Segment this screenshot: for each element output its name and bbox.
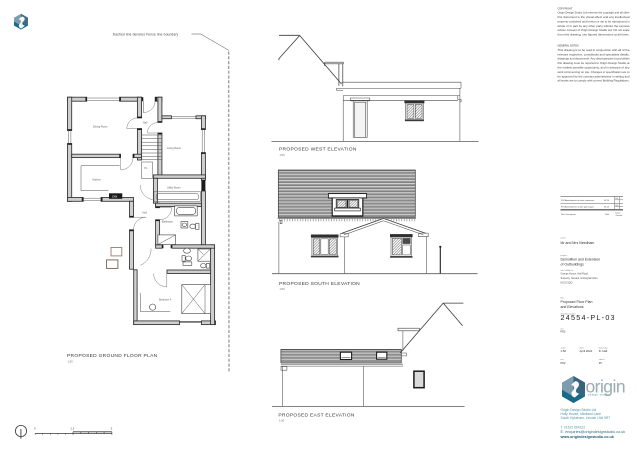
svg-text:PROPOSED SOUTH ELEVATION: PROPOSED SOUTH ELEVATION: [279, 281, 360, 287]
svg-text:written consent of Origin Desi: written consent of Origin Design Studio …: [558, 29, 631, 32]
svg-text:2.5: 2.5: [71, 426, 75, 430]
svg-text:1:50: 1:50: [280, 153, 286, 157]
svg-text:work commencing on site. Chang: work commencing on site. Changes or spec…: [558, 71, 631, 74]
svg-text:1:50: 1:50: [561, 349, 567, 353]
svg-text:PROPOSED WEST ELEVATION: PROPOSED WEST ELEVATION: [279, 147, 357, 153]
svg-text:P02 Amendments to client com: P02 Amendments to client comments: [561, 199, 594, 202]
svg-text:from this drawing, use figured: from this drawing, use figured dimension…: [558, 34, 630, 37]
svg-text:Proposed Floor Plan: Proposed Floor Plan: [561, 300, 593, 304]
svg-text:04.24: 04.24: [604, 200, 610, 202]
svg-text:title:: title:: [561, 297, 565, 300]
svg-text:Bathroom: Bathroom: [162, 220, 173, 223]
svg-text:Utility Room: Utility Room: [167, 187, 180, 190]
svg-text:Rev. Description: Rev. Description: [561, 213, 576, 216]
svg-text:24554-PL-03: 24554-PL-03: [561, 313, 616, 322]
svg-text:client:: client:: [561, 237, 567, 240]
svg-text:Demolition and Extension: Demolition and Extension: [561, 258, 601, 262]
svg-text:www.origindesignstudio.co.uk: www.origindesignstudio.co.uk: [560, 435, 615, 439]
svg-text:of Outbuildings: of Outbuildings: [561, 263, 585, 267]
svg-text:COPYRIGHT: COPYRIGHT: [558, 7, 573, 10]
svg-text:P01 Amendments to floor plan: P01 Amendments to floor plan layout: [561, 206, 594, 209]
svg-text:Dining Room: Dining Room: [93, 126, 107, 129]
svg-text:this drawing must be reported: this drawing must be reported to Origin …: [558, 62, 630, 65]
svg-text:Living Room: Living Room: [167, 147, 181, 150]
svg-text:1:50: 1:50: [280, 287, 286, 291]
svg-text:PROPOSED GROUND FLOOR PLAN: PROPOSED GROUND FLOOR PLAN: [67, 353, 158, 359]
svg-text:drawings and documents. Any di: drawings and documents. Any discrepancie…: [558, 58, 631, 61]
svg-text:D. Hall: D. Hall: [599, 349, 608, 353]
svg-text:03.24: 03.24: [604, 207, 610, 209]
svg-text:GENERAL NOTES: GENERAL NOTES: [558, 45, 579, 48]
svg-text:P02: P02: [561, 361, 566, 365]
svg-text:PROPOSED EAST ELEVATION: PROPOSED EAST ELEVATION: [278, 412, 354, 418]
svg-text:Dashed line denotes Fence line: Dashed line denotes Fence line boundary: [113, 32, 179, 36]
svg-text:the earliest possible opportun: the earliest possible opportunity, and i…: [558, 67, 631, 70]
svg-text:P02: P02: [561, 330, 566, 334]
svg-text:April 2024: April 2024: [580, 349, 593, 353]
svg-text:DW: DW: [112, 195, 117, 199]
svg-text:Origin Design Studio Ltd reser: Origin Design Studio Ltd reserves the co…: [558, 12, 630, 15]
svg-text:project:: project:: [561, 254, 568, 257]
svg-text:T. 01522 694122: T. 01522 694122: [561, 425, 586, 429]
svg-text:South Hykeham, Lincoln LN6 9RT: South Hykeham, Lincoln LN6 9RT: [561, 416, 611, 420]
svg-text:Hall: Hall: [143, 121, 148, 124]
svg-text:property contained and hereon: property contained and hereon is not to …: [558, 20, 631, 23]
svg-text:Mr and Mrs Needham: Mr and Mrs Needham: [561, 241, 595, 245]
svg-text:1:50: 1:50: [279, 419, 285, 423]
svg-text:1:50: 1:50: [68, 360, 74, 364]
svg-text:NG23 5QD: NG23 5QD: [561, 282, 573, 285]
svg-text:E. enquiries@origindesignstudi: E. enquiries@origindesignstudio.co.uk: [561, 430, 626, 434]
svg-text:relevant engineers, consultant: relevant engineers, consultants and spec…: [558, 53, 630, 56]
svg-text:and Elevations: and Elevations: [561, 305, 584, 309]
svg-text:Grange House, Hall Road: Grange House, Hall Road: [561, 272, 589, 275]
svg-text:Sowerby, Newark, Nottinghamshi: Sowerby, Newark, Nottinghamshire: [561, 277, 599, 280]
svg-text:design studio: design studio: [588, 392, 610, 396]
svg-text:be approved by the contract ad: be approved by the contract administrato…: [558, 75, 631, 78]
svg-text:This drawing is to be read in: This drawing is to be read in conjunctio…: [558, 49, 631, 52]
svg-text:all works are to comply with c: all works are to comply with current Bui…: [558, 80, 630, 83]
svg-text:Kitchen: Kitchen: [93, 179, 102, 182]
svg-text:Hall: Hall: [143, 211, 148, 214]
svg-text:whole or in part by any other: whole or in part by any other party with…: [558, 25, 631, 28]
svg-text:PL: PL: [599, 361, 603, 365]
svg-text:Checked: Checked: [616, 215, 623, 217]
svg-text:this document is the visual ef: this document is the visual effect and a…: [558, 16, 631, 19]
svg-text:Bedroom 4: Bedroom 4: [159, 298, 172, 301]
